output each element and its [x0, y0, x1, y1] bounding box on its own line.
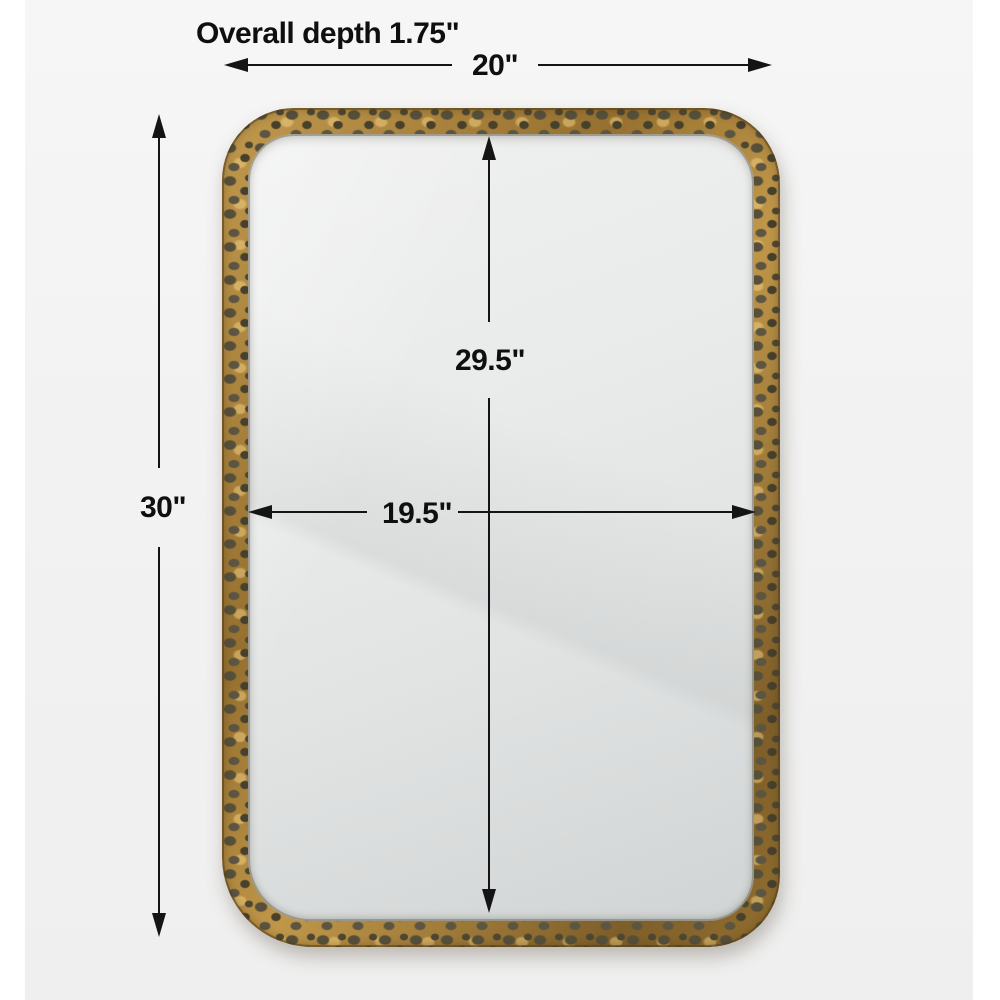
- mirror-frame: [222, 108, 780, 947]
- mirror-height-dim-line-bottom: [488, 398, 491, 891]
- height-dim-line-top: [158, 136, 161, 468]
- mirror-width-dim-arrowhead-right: [732, 505, 756, 519]
- mirror-height-dim-line-top: [488, 158, 491, 322]
- mirror-width-dim-label: 19.5": [347, 497, 487, 531]
- width-dim-arrowhead-right: [748, 58, 772, 72]
- mirror-height-dim-arrowhead-bottom: [482, 889, 496, 913]
- width-dim-arrowhead-left: [224, 58, 248, 72]
- mirror-height-dim-arrowhead-top: [482, 136, 496, 160]
- mirror-glass: [248, 134, 754, 921]
- width-dim-line-right: [538, 64, 750, 67]
- width-dim-label: 20": [455, 49, 535, 83]
- width-dim-line-left: [246, 64, 452, 67]
- height-dim-arrowhead-bottom: [152, 913, 166, 937]
- product-dimension-diagram: Overall depth 1.75" 20" 30" 29.5" 19.5": [0, 0, 1000, 1000]
- height-dim-label: 30": [108, 491, 218, 525]
- height-dim-arrowhead-top: [152, 114, 166, 138]
- photo-background: Overall depth 1.75" 20" 30" 29.5" 19.5": [25, 0, 973, 1000]
- mirror-width-dim-line-right: [458, 511, 734, 514]
- height-dim-line-bottom: [158, 547, 161, 915]
- mirror-width-dim-arrowhead-left: [248, 505, 272, 519]
- overall-depth-label: Overall depth 1.75": [196, 17, 459, 51]
- mirror-height-dim-label: 29.5": [420, 344, 560, 378]
